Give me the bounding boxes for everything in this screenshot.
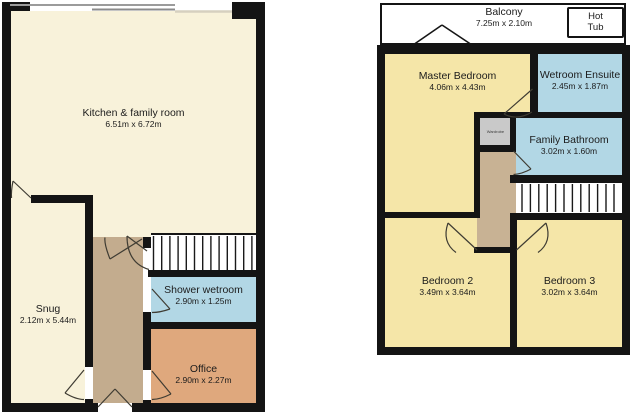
wall (510, 213, 622, 220)
room-snug (11, 195, 85, 403)
room-dims: 4.06m x 4.43m (385, 82, 530, 92)
room-dims: 6.51m x 6.72m (31, 119, 236, 129)
room-name: Family Bathroom (516, 134, 622, 146)
room-name: Balcony (380, 6, 628, 18)
label-bedroom-3: Bedroom 3 3.02m x 3.64m (517, 275, 622, 297)
room-dims: 7.25m x 2.10m (380, 18, 628, 28)
label-bedroom-2: Bedroom 2 3.49m x 3.64m (385, 275, 510, 297)
wall (151, 322, 256, 329)
label-snug: Snug 2.12m x 5.44m (11, 303, 85, 325)
wall (256, 2, 265, 412)
wall (510, 253, 517, 347)
wall (2, 403, 98, 412)
wall (148, 270, 256, 277)
room-name: Office (151, 363, 256, 375)
room-dims: 3.49m x 3.64m (385, 287, 510, 297)
wall (377, 45, 385, 355)
room-dims: 2.90m x 2.27m (151, 375, 256, 385)
wall (143, 237, 151, 248)
label-kitchen: Kitchen & family room 6.51m x 6.72m (31, 107, 236, 129)
wall (622, 45, 630, 355)
label-family-bathroom: Family Bathroom 3.02m x 1.60m (516, 134, 622, 156)
wall (143, 400, 151, 405)
room-dims: 2.45m x 1.87m (536, 81, 624, 91)
room-name: Kitchen & family room (31, 107, 236, 119)
wall (377, 347, 630, 355)
wall (85, 195, 93, 367)
room-dims: 3.02m x 1.60m (516, 146, 622, 156)
room-name: Bedroom 2 (385, 275, 510, 287)
wall (2, 2, 11, 412)
wall (85, 399, 93, 407)
ground-staircase (151, 235, 256, 270)
label-master-bedroom: Master Bedroom 4.06m x 4.43m (385, 70, 530, 92)
label-office: Office 2.90m x 2.27m (151, 363, 256, 385)
room-master-bedroom-lower (385, 88, 474, 212)
wall (510, 175, 622, 183)
room-kitchen-family (11, 11, 256, 195)
room-dims: 2.90m x 1.25m (151, 296, 256, 306)
label-wetroom-ensuite: Wetroom Ensuite 2.45m x 1.87m (536, 69, 624, 91)
room-kitchen-family-lower (93, 195, 256, 237)
label-shower-wetroom: Shower wetroom 2.90m x 1.25m (151, 284, 256, 306)
room-name: Snug (11, 303, 85, 315)
floorplan-canvas: Kitchen & family room 6.51m x 6.72m Snug… (0, 0, 632, 418)
room-name: Shower wetroom (151, 284, 256, 296)
room-dims: 2.12m x 5.44m (11, 315, 85, 325)
room-name: Wardrobe (486, 129, 503, 134)
wall (377, 212, 477, 218)
wardrobe-label: Wardrobe (480, 118, 510, 145)
ground-hallway (93, 237, 143, 403)
label-balcony: Balcony 7.25m x 2.10m (380, 6, 628, 28)
first-staircase (514, 183, 622, 213)
wall (232, 2, 265, 19)
wall (132, 403, 265, 412)
wall (474, 145, 516, 152)
wall (143, 312, 151, 370)
room-name: Wetroom Ensuite (536, 69, 624, 81)
room-dims: 3.02m x 3.64m (517, 287, 622, 297)
wall (31, 195, 93, 203)
wall (2, 2, 30, 11)
room-name: Master Bedroom (385, 70, 530, 82)
room-name: Bedroom 3 (517, 275, 622, 287)
wall (377, 45, 630, 54)
